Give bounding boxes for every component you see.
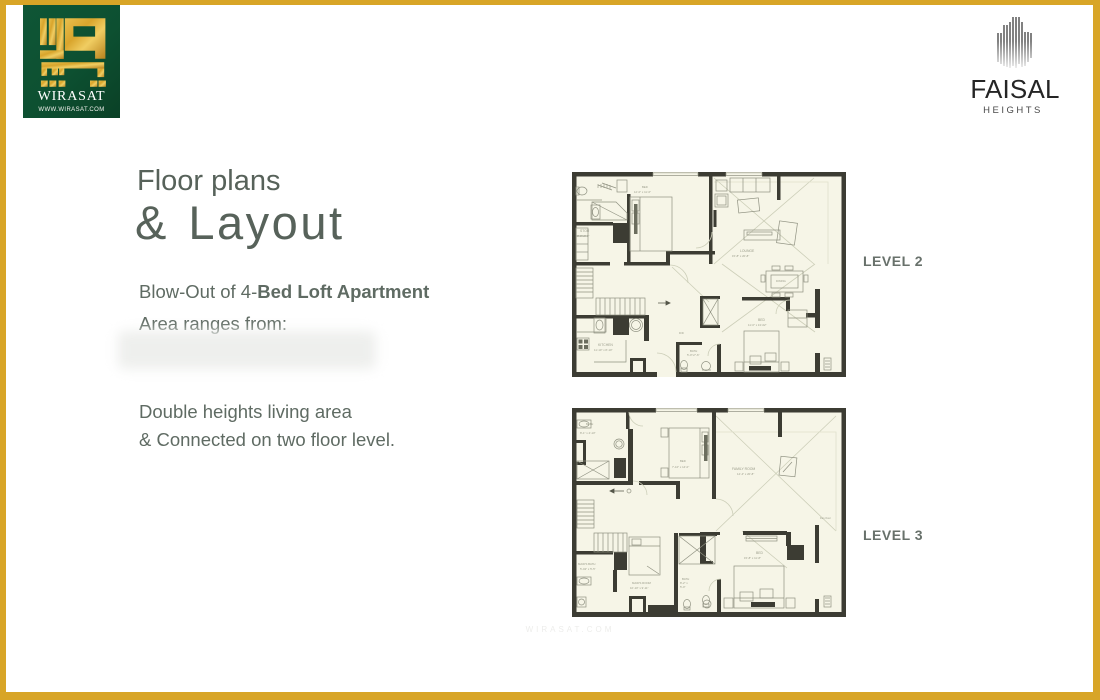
svg-text:3'-0"x6'-8": 3'-0"x6'-8" xyxy=(577,234,590,238)
svg-text:15'-8" x 11'-8": 15'-8" x 11'-8" xyxy=(744,556,761,560)
svg-text:BED: BED xyxy=(756,551,764,555)
svg-text:D/D: D/D xyxy=(679,331,684,335)
svg-text:Fan Over: Fan Over xyxy=(820,516,831,520)
svg-text:5'-02" x 5'-5": 5'-02" x 5'-5" xyxy=(580,567,596,571)
svg-text:KITCHEN: KITCHEN xyxy=(598,343,613,347)
svg-text:FAMILY ROOM: FAMILY ROOM xyxy=(732,467,755,471)
svg-text:5'-0": 5'-0" xyxy=(680,585,686,589)
svg-text:BED: BED xyxy=(642,185,648,189)
svg-text:10'-10" x 9'-11": 10'-10" x 9'-11" xyxy=(630,586,649,590)
svg-text:BATH: BATH xyxy=(586,422,593,426)
svg-text:8'-1" x 4'-10": 8'-1" x 4'-10" xyxy=(580,431,596,435)
svg-text:BED: BED xyxy=(680,459,686,463)
svg-text:12'-0" x 11'-6": 12'-0" x 11'-6" xyxy=(634,190,651,194)
svg-text:MAID'S ROOM: MAID'S ROOM xyxy=(632,581,652,585)
svg-text:MAID'S BATH: MAID'S BATH xyxy=(578,562,595,566)
svg-text:STOR: STOR xyxy=(580,229,590,233)
svg-text:DINING: DINING xyxy=(776,279,786,283)
svg-text:15'-8" x 20'-8": 15'-8" x 20'-8" xyxy=(732,254,749,258)
svg-text:7'-10" x 14'-0": 7'-10" x 14'-0" xyxy=(672,465,689,469)
svg-text:11'-0" x 13'-02": 11'-0" x 13'-02" xyxy=(748,323,767,327)
svg-text:5'-0"x7'-6": 5'-0"x7'-6" xyxy=(687,353,700,357)
svg-text:11'-10" x 8'-10": 11'-10" x 8'-10" xyxy=(594,348,613,352)
svg-text:BED: BED xyxy=(758,318,766,322)
svg-text:LOUNGE: LOUNGE xyxy=(740,249,755,253)
svg-text:14'-4" x 20'-8": 14'-4" x 20'-8" xyxy=(737,472,754,476)
